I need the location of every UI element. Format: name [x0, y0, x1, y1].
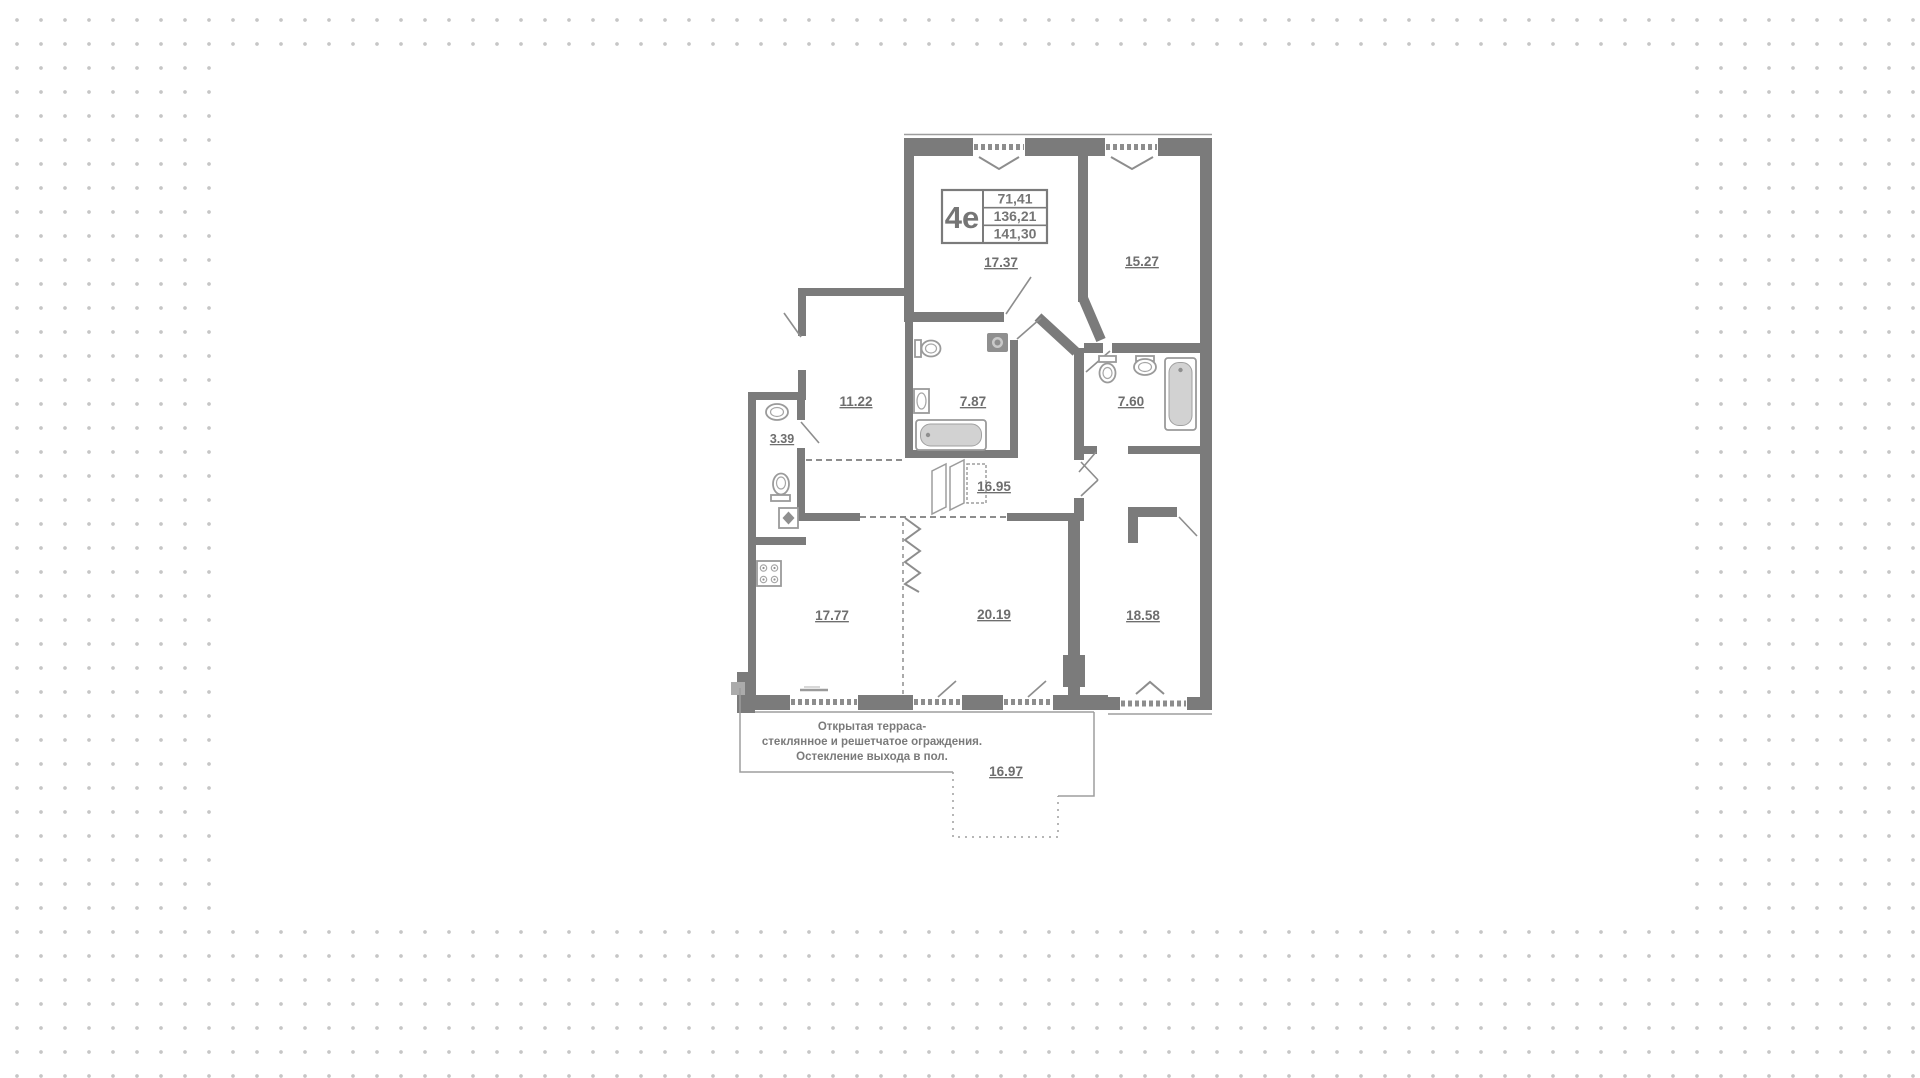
area-value: 71,41 — [997, 191, 1032, 207]
room-area-label: 3.39 — [770, 432, 794, 446]
page-background: 4е 71,41 136,21 141,30 17.37 15.27 11.22… — [0, 0, 1920, 1078]
sink-icon — [914, 389, 929, 413]
fixtures — [757, 333, 1196, 586]
floor-plan: 4е 71,41 136,21 141,30 17.37 15.27 11.22… — [700, 90, 1260, 850]
zone-lines — [806, 460, 1007, 694]
window-opening-mark — [1136, 682, 1164, 694]
terrace-door-swing — [1028, 681, 1046, 697]
washing-machine-icon — [779, 508, 798, 528]
room-area-label: 17.77 — [815, 608, 849, 623]
area-value: 136,21 — [994, 208, 1037, 224]
toilet-icon — [915, 340, 941, 357]
sink-icon — [1134, 356, 1156, 375]
terrace-note-line: Открытая терраса- — [818, 721, 927, 733]
toilet-icon — [1099, 356, 1116, 383]
terrace-note: Открытая терраса- стеклянное и решетчато… — [762, 721, 982, 763]
room-area-label: 16.95 — [977, 479, 1011, 494]
terrace-note-line: Остекление выхода в пол. — [796, 751, 948, 763]
door-swing — [1017, 318, 1041, 339]
bathtub-icon — [916, 420, 986, 450]
toilet-icon — [771, 474, 790, 502]
door-swing — [1081, 480, 1098, 496]
bathtub-icon — [1165, 358, 1196, 430]
door-swing — [801, 422, 819, 443]
terrace-note-line: стеклянное и решетчатое ограждения. — [762, 736, 982, 748]
room-area-label: 15.27 — [1125, 254, 1159, 269]
area-value: 141,30 — [994, 226, 1037, 242]
stove-icon — [757, 561, 781, 586]
washing-machine-icon — [987, 333, 1008, 352]
terrace-pier — [731, 682, 745, 695]
room-area-label: 7.60 — [1118, 394, 1144, 409]
room-area-label: 18.58 — [1126, 608, 1160, 623]
unit-type-label: 4е — [945, 200, 979, 235]
title-block: 4е 71,41 136,21 141,30 — [942, 190, 1047, 243]
room-area-label: 17.37 — [984, 255, 1018, 270]
room-area-label: 7.87 — [960, 394, 986, 409]
room-area-label: 20.19 — [977, 607, 1011, 622]
room-area-label: 11.22 — [839, 394, 872, 409]
sliding-partition-mark — [905, 518, 920, 592]
sink-icon — [766, 404, 788, 420]
door-swing — [1179, 517, 1197, 536]
terrace-door-swing — [938, 681, 956, 697]
door-swing — [1006, 277, 1031, 314]
door-swing — [1081, 462, 1098, 480]
window-opening-mark — [979, 157, 1019, 169]
terrace-area-label: 16.97 — [989, 764, 1023, 779]
window-opening-mark — [1111, 157, 1153, 169]
